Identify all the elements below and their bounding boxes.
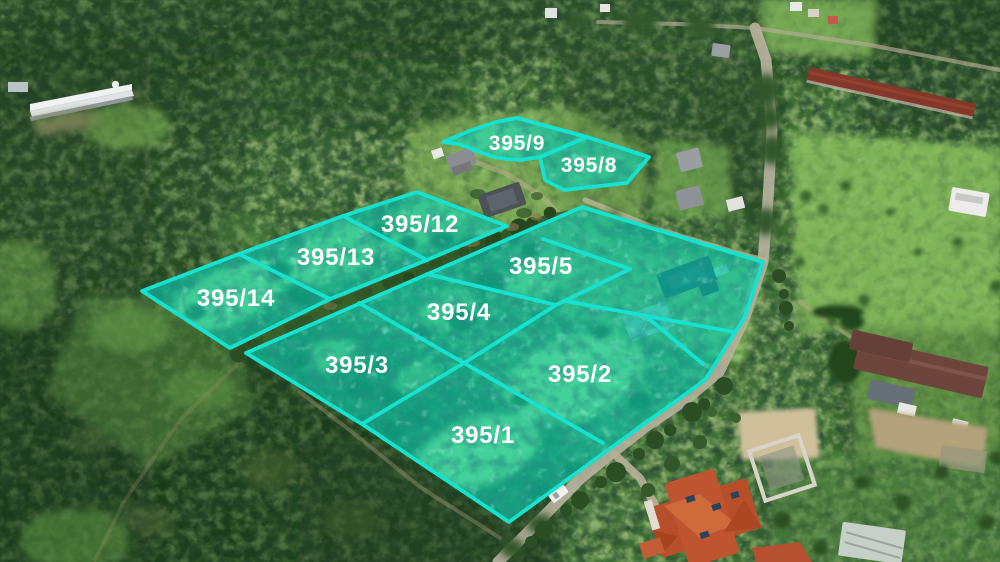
svg-text:395/2: 395/2 <box>548 361 612 388</box>
svg-text:395/12: 395/12 <box>381 211 459 238</box>
svg-text:395/9: 395/9 <box>489 132 546 155</box>
svg-text:395/4: 395/4 <box>427 299 491 326</box>
svg-text:395/14: 395/14 <box>197 285 275 312</box>
svg-text:395/13: 395/13 <box>297 244 375 271</box>
svg-text:395/8: 395/8 <box>561 154 618 177</box>
svg-text:395/1: 395/1 <box>451 422 515 449</box>
svg-text:395/5: 395/5 <box>509 253 573 280</box>
svg-text:395/3: 395/3 <box>325 352 389 379</box>
